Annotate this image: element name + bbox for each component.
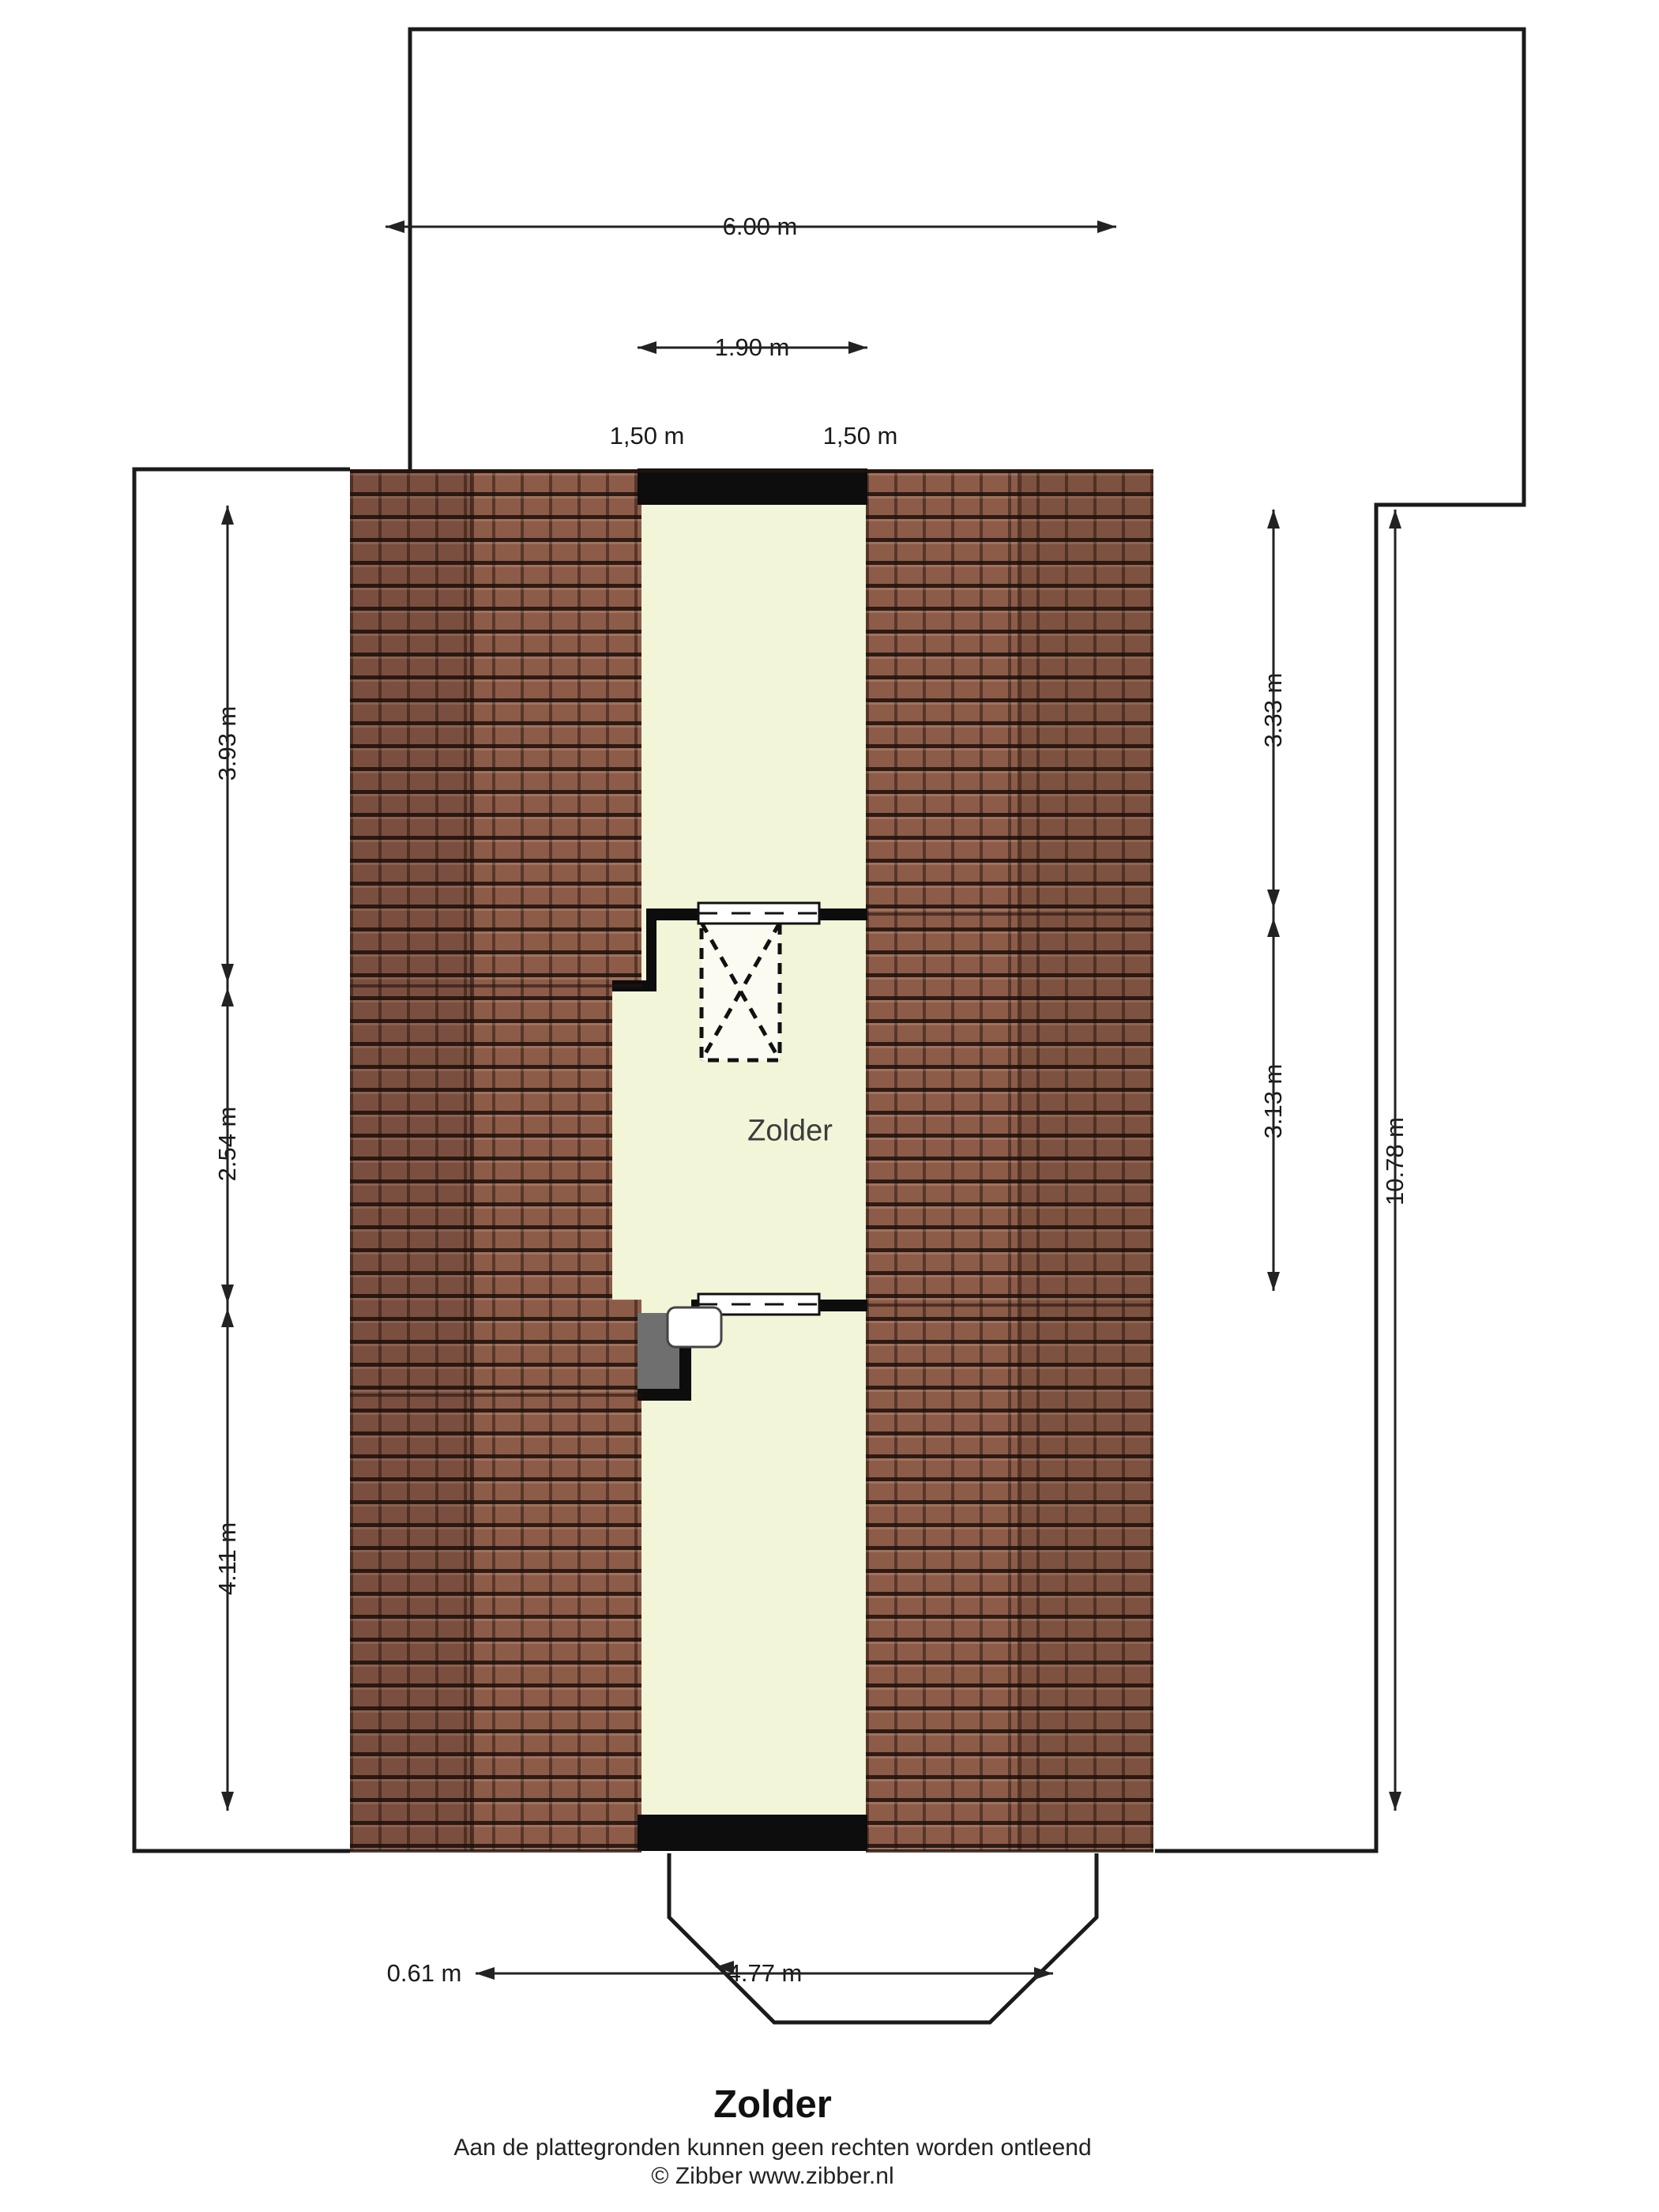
outline-bay-window bbox=[669, 1853, 1097, 2022]
arrowhead-down-icon bbox=[221, 1792, 234, 1811]
arrowhead-up-icon bbox=[221, 506, 234, 525]
arrowhead-right-icon bbox=[1097, 220, 1116, 233]
arrowhead-up-icon bbox=[1389, 510, 1401, 529]
arrowhead-left-icon bbox=[386, 220, 404, 233]
arrowhead-left-icon bbox=[476, 1967, 495, 1980]
skylight-symbol bbox=[668, 1307, 721, 1347]
arrowhead-down-icon bbox=[1389, 1792, 1401, 1811]
arrowhead-up-icon bbox=[221, 1308, 234, 1327]
arrowhead-down-icon bbox=[1267, 890, 1280, 908]
arrowhead-down-icon bbox=[221, 964, 234, 983]
arrowhead-up-icon bbox=[1267, 510, 1280, 529]
arrowhead-left-icon bbox=[638, 341, 656, 354]
outline-left-strip bbox=[134, 469, 350, 1851]
outline-main bbox=[410, 29, 1524, 1851]
arrowhead-down-icon bbox=[1267, 1272, 1280, 1291]
arrowhead-right-icon bbox=[848, 341, 867, 354]
arrowhead-up-icon bbox=[221, 987, 234, 1006]
arrowhead-up-icon bbox=[1267, 918, 1280, 937]
floorplan-page: 6.00 m 1.90 m 1,50 m 1,50 m 3.93 m 2.54 … bbox=[0, 0, 1659, 2212]
plan-linework bbox=[0, 0, 1659, 2212]
arrowhead-down-icon bbox=[221, 1285, 234, 1303]
